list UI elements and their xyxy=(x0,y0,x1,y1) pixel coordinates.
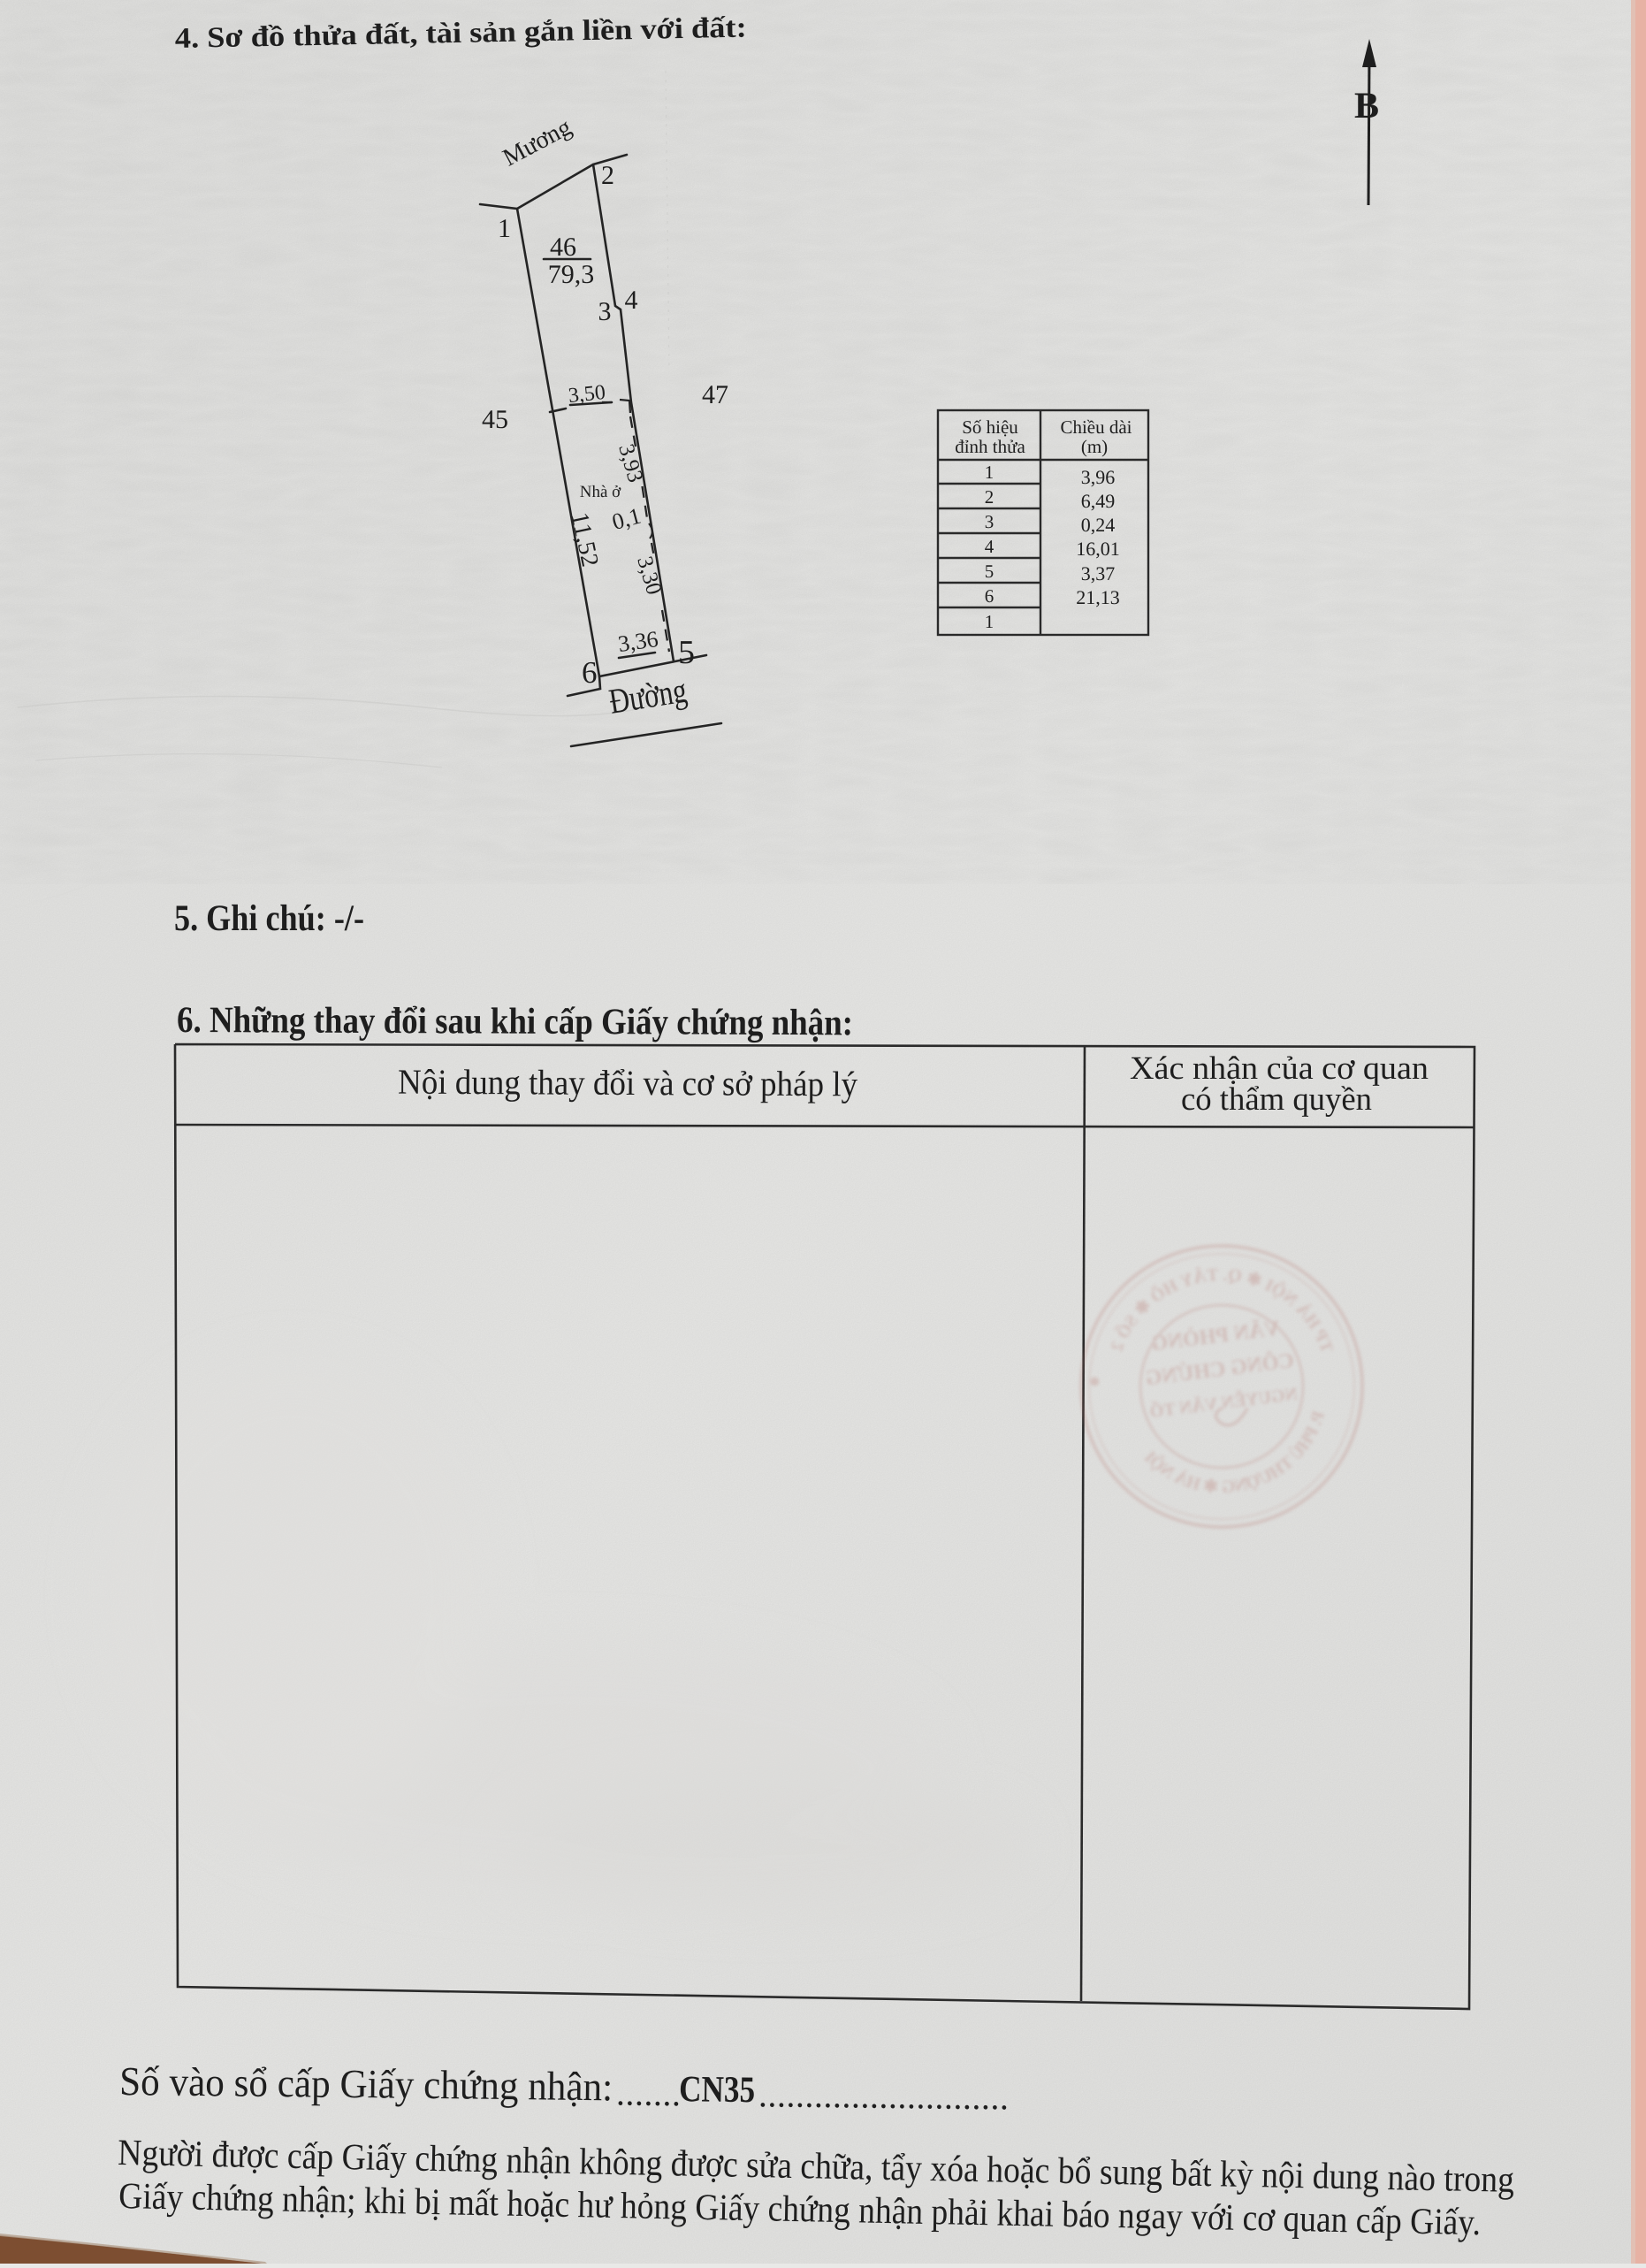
svg-text:5. Ghi chú: -/-: 5. Ghi chú: -/- xyxy=(174,898,364,939)
svg-text:5: 5 xyxy=(985,561,994,582)
svg-text:Nhà ở: Nhà ở xyxy=(580,483,621,501)
svg-text:21,13: 21,13 xyxy=(1076,586,1120,608)
svg-text:45: 45 xyxy=(482,405,508,434)
svg-text:...........................: ........................... xyxy=(758,2074,1010,2117)
svg-text:2: 2 xyxy=(985,486,994,508)
svg-text:3,37: 3,37 xyxy=(1081,562,1116,584)
svg-text:4: 4 xyxy=(625,286,638,315)
svg-text:3,50: 3,50 xyxy=(568,381,606,408)
svg-text:47: 47 xyxy=(702,380,728,409)
svg-text:16,01: 16,01 xyxy=(1076,538,1120,560)
svg-text:3,96: 3,96 xyxy=(1081,466,1116,488)
svg-text:(m): (m) xyxy=(1081,436,1108,457)
svg-text:6,49: 6,49 xyxy=(1081,490,1116,512)
svg-text:46: 46 xyxy=(550,233,576,262)
svg-text:Nội dung thay đổi và cơ sở phá: Nội dung thay đổi và cơ sở pháp lý xyxy=(398,1062,857,1104)
svg-text:B: B xyxy=(1354,86,1379,126)
svg-text:0,24: 0,24 xyxy=(1081,514,1116,536)
svg-text:có thẩm quyền: có thẩm quyền xyxy=(1181,1081,1372,1118)
svg-text:5: 5 xyxy=(678,634,695,671)
svg-text:6: 6 xyxy=(582,655,598,690)
svg-text:2: 2 xyxy=(601,161,614,190)
svg-text:Số vào sổ cấp Giấy chứng nhận:: Số vào sổ cấp Giấy chứng nhận: xyxy=(119,2058,613,2109)
svg-text:6. Những thay đổi sau khi cấp: 6. Những thay đổi sau khi cấp Giấy chứng… xyxy=(177,1000,853,1043)
svg-text:6: 6 xyxy=(985,585,994,607)
svg-text:3: 3 xyxy=(985,511,994,532)
svg-text:1: 1 xyxy=(985,611,994,632)
svg-text:4: 4 xyxy=(985,536,994,557)
svg-text:1: 1 xyxy=(985,462,994,483)
svg-text:.......: ....... xyxy=(616,2073,682,2113)
svg-text:3: 3 xyxy=(598,297,612,326)
svg-text:1: 1 xyxy=(498,214,511,243)
svg-text:79,3: 79,3 xyxy=(548,260,595,289)
svg-text:CN35: CN35 xyxy=(679,2069,756,2111)
svg-text:đỉnh thửa: đỉnh thửa xyxy=(955,436,1025,457)
svg-text:Số hiệu: Số hiệu xyxy=(962,416,1018,438)
svg-text:Chiều dài: Chiều dài xyxy=(1060,416,1132,438)
